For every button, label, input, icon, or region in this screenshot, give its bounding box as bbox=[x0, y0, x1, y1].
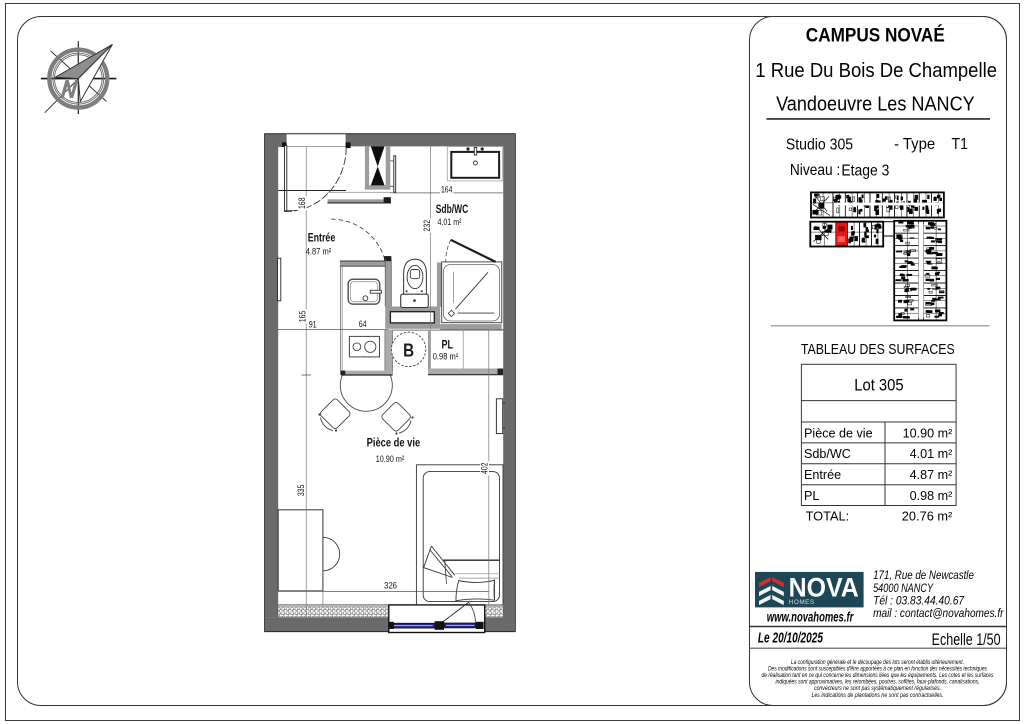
svg-text:TOTAL:: TOTAL: bbox=[806, 508, 850, 523]
svg-text:10.90 m²: 10.90 m² bbox=[903, 426, 953, 440]
svg-text:- Type: - Type bbox=[894, 136, 935, 153]
svg-text:10.90 m²: 10.90 m² bbox=[376, 454, 405, 464]
svg-text:Pièce de vie: Pièce de vie bbox=[367, 435, 421, 449]
svg-text:Lot 305: Lot 305 bbox=[854, 375, 904, 394]
svg-text:Sdb/WC: Sdb/WC bbox=[436, 202, 469, 216]
svg-text:Entrée: Entrée bbox=[804, 468, 841, 482]
svg-text:1 Rue Du Bois De Champelle: 1 Rue Du Bois De Champelle bbox=[755, 59, 997, 82]
svg-text:PL: PL bbox=[804, 489, 819, 503]
svg-text:Le 20/10/2025: Le 20/10/2025 bbox=[758, 631, 824, 647]
svg-text:164: 164 bbox=[441, 184, 453, 194]
svg-text:402: 402 bbox=[480, 462, 490, 474]
svg-text:Entrée: Entrée bbox=[308, 231, 336, 245]
svg-text:TABLEAU DES SURFACES: TABLEAU DES SURFACES bbox=[801, 342, 955, 358]
svg-text:mail : contact@novahomes.fr: mail : contact@novahomes.fr bbox=[873, 606, 1004, 620]
svg-text:326: 326 bbox=[384, 581, 397, 591]
svg-text:91: 91 bbox=[309, 320, 317, 330]
svg-text:335: 335 bbox=[296, 485, 306, 497]
svg-text:64: 64 bbox=[359, 319, 367, 329]
svg-text:Les indications de plantations: Les indications de plantations ne sont p… bbox=[812, 692, 944, 699]
svg-text:Studio 305: Studio 305 bbox=[786, 136, 853, 153]
svg-text:www.novahomes.fr: www.novahomes.fr bbox=[767, 608, 855, 624]
svg-text:4.01 m²: 4.01 m² bbox=[438, 217, 462, 227]
svg-text:T1: T1 bbox=[952, 136, 968, 153]
svg-text:4.87 m²: 4.87 m² bbox=[306, 247, 332, 257]
svg-text:0.98 m²: 0.98 m² bbox=[910, 489, 953, 503]
svg-text:Niveau :: Niveau : bbox=[790, 162, 840, 179]
svg-text:Vandoeuvre Les NANCY: Vandoeuvre Les NANCY bbox=[776, 93, 975, 116]
svg-text:Pièce de vie: Pièce de vie bbox=[804, 426, 873, 440]
svg-text:Etage 3: Etage 3 bbox=[841, 163, 889, 180]
svg-text:4.01 m²: 4.01 m² bbox=[910, 447, 953, 461]
svg-text:165: 165 bbox=[297, 311, 307, 323]
svg-text:168: 168 bbox=[297, 197, 307, 209]
svg-text:B: B bbox=[403, 340, 414, 361]
svg-text:20.76 m²: 20.76 m² bbox=[902, 508, 953, 523]
svg-text:4.87 m²: 4.87 m² bbox=[910, 468, 953, 482]
svg-text:232: 232 bbox=[422, 220, 432, 232]
svg-text:Echelle 1/50: Echelle 1/50 bbox=[932, 630, 1001, 649]
svg-text:CAMPUS NOVAÉ: CAMPUS NOVAÉ bbox=[806, 24, 945, 47]
svg-text:0.98 m²: 0.98 m² bbox=[433, 351, 459, 361]
svg-text:PL: PL bbox=[441, 338, 453, 352]
svg-text:HOMES: HOMES bbox=[789, 599, 814, 606]
svg-text:Sdb/WC: Sdb/WC bbox=[804, 447, 851, 461]
